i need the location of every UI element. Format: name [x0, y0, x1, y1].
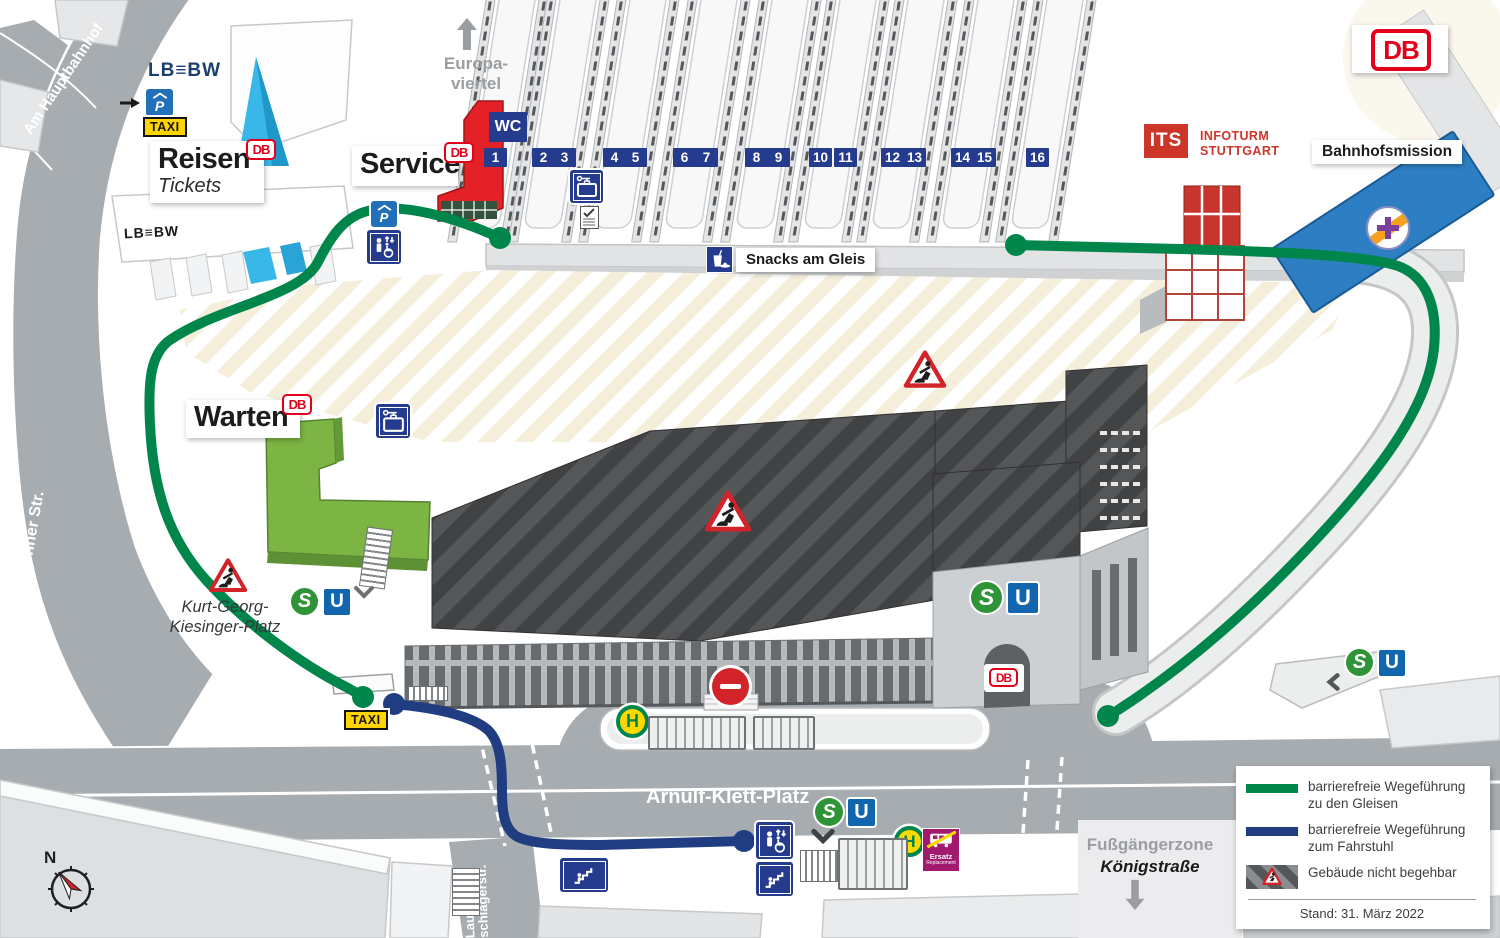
parking-garage-icon: P [371, 201, 397, 227]
kiesinger-line1: Kurt-Georg- [160, 598, 290, 618]
bus-stop-icon: H [616, 705, 649, 738]
infoturm-label: INFOTURM STUTTGART [1200, 129, 1279, 159]
legend: barrierefreie Wegeführung zu den Gleisen… [1236, 766, 1490, 929]
platform-number: 10 [809, 148, 832, 167]
db-brand-card: DB [1352, 25, 1448, 73]
platform-number: 3 [553, 148, 576, 167]
bus-shelter [753, 716, 815, 750]
legend-row-elevator-route: barrierefreie Wegeführung zum Fahrstuhl [1246, 822, 1478, 856]
ersatz-sublabel: Replacement [924, 861, 958, 866]
platform-tracks [448, 0, 1106, 242]
db-logo: DB [1371, 29, 1431, 71]
platform-number: 5 [624, 148, 647, 167]
escalator-icon [560, 858, 608, 892]
bahnhofsmission-card: Bahnhofsmission [1312, 140, 1462, 164]
chevron-left-icon [1324, 672, 1342, 692]
koenigstrasse-label: Königstraße [1086, 857, 1214, 877]
ubahn-icon: U [1379, 650, 1405, 676]
platform-number: 11 [834, 148, 857, 167]
escalator-icon [756, 862, 793, 896]
db-logo: DB [246, 139, 276, 160]
legend-row-closed-building: Gebäude nicht begehbar [1246, 865, 1478, 889]
kiesinger-platz-label: Kurt-Georg- Kiesinger-Platz [160, 598, 290, 638]
ticket-machine-icon [580, 206, 599, 229]
warten-building [266, 417, 430, 571]
sbahn-icon: S [815, 798, 843, 826]
compass-icon [38, 856, 104, 922]
construction-warning-icon [903, 349, 947, 390]
europaviertel-line1: Europa- [427, 54, 525, 74]
platform-number: 7 [695, 148, 718, 167]
snacks-icon [706, 246, 733, 273]
platform-number: 6 [673, 148, 696, 167]
platform-number: 9 [767, 148, 790, 167]
arrow-right-icon [118, 96, 142, 110]
platform-number: 12 [881, 148, 904, 167]
platform-number: 16 [1026, 148, 1049, 167]
taxi-sign: TAXI [344, 710, 388, 730]
legend-date: Stand: 31. März 2022 [1246, 906, 1478, 921]
reisen-title: Reisen [158, 145, 256, 175]
stairs-icon [452, 868, 480, 916]
lbbw-logo: LB≡BW [148, 60, 221, 82]
warten-title: Warten [194, 403, 292, 433]
legend-label: barrierefreie Wegeführung zum Fahrstuhl [1308, 822, 1478, 856]
db-logo: DB [444, 142, 474, 163]
bahnhofsmission-label: Bahnhofsmission [1322, 143, 1452, 160]
fussgaengerzone-label: Fußgängerzone [1086, 835, 1214, 855]
construction-warning-icon [1262, 867, 1282, 886]
infoturm-line1: INFOTURM [1200, 129, 1279, 144]
stairs-icon [800, 850, 838, 882]
platform-number: 2 [532, 148, 555, 167]
platform-number: 15 [973, 148, 996, 167]
station-map: Am Hauptbahnhof Heilbronner Str. Arnulf-… [0, 0, 1500, 938]
db-logo: DB [989, 668, 1018, 687]
tower-db-plate: DB [984, 664, 1024, 692]
legend-label: Gebäude nicht begehbar [1308, 865, 1457, 882]
db-logo: DB [282, 394, 312, 415]
bus-shelter [648, 716, 746, 750]
ubahn-icon: U [324, 589, 350, 615]
legend-divider [1248, 899, 1476, 900]
arrow-down-icon [1122, 878, 1148, 912]
stairs-icon [408, 686, 448, 701]
lbbw-logo: LB≡BW [124, 223, 180, 242]
chevron-down-icon [810, 828, 836, 844]
sbahn-icon: S [1346, 649, 1373, 676]
bahnhofsmission-logo-icon [1366, 206, 1410, 250]
bus-icon [926, 831, 956, 849]
elevator-icon [367, 230, 401, 264]
legend-label: barrierefreie Wegeführung zu den Gleisen [1308, 779, 1478, 813]
infoturm-line2: STUTTGART [1200, 144, 1279, 159]
luggage-locker-icon [376, 404, 410, 438]
legend-green-line-swatch [1246, 784, 1298, 793]
ubahn-icon: U [1008, 583, 1038, 613]
platform-number: 8 [745, 148, 768, 167]
ubahn-icon: U [848, 799, 875, 826]
platform-number: 14 [951, 148, 974, 167]
platform-number: 1 [484, 148, 507, 167]
construction-warning-icon [704, 489, 752, 534]
station-entrance-canopy [838, 838, 908, 890]
construction-warning-icon [208, 557, 248, 594]
platform-number: 4 [603, 148, 626, 167]
snacks-label-card: Snacks am Gleis [736, 248, 875, 272]
taxi-sign: TAXI [143, 117, 187, 137]
service-card: Service [352, 146, 458, 186]
kiesinger-line2: Kiesinger-Platz [160, 618, 290, 638]
snacks-label: Snacks am Gleis [746, 251, 865, 268]
platform-number: 13 [903, 148, 926, 167]
chevron-down-icon [353, 585, 375, 599]
legend-hatch-swatch [1246, 865, 1298, 889]
europaviertel-label: Europa- viertel [427, 54, 525, 93]
arrow-up-icon [454, 16, 480, 52]
no-entry-icon [712, 668, 749, 705]
ersatzverkehr-icon: Ersatz Replacement [922, 828, 960, 872]
service-title: Service [360, 150, 450, 180]
elevator-icon [756, 822, 793, 859]
sbahn-icon: S [971, 582, 1002, 613]
europaviertel-line2: viertel [427, 74, 525, 94]
tickets-subtitle: Tickets [158, 175, 256, 197]
street-arnulf-klett-platz: Arnulf-Klett-Platz [646, 786, 809, 809]
legend-blue-line-swatch [1246, 827, 1298, 836]
its-logo: ITS [1144, 124, 1188, 158]
luggage-locker-icon [570, 170, 603, 203]
wc-sign: WC [489, 112, 527, 142]
parking-garage-icon: P [146, 89, 173, 116]
legend-row-platform-route: barrierefreie Wegeführung zu den Gleisen [1246, 779, 1478, 813]
sbahn-icon: S [291, 588, 318, 615]
